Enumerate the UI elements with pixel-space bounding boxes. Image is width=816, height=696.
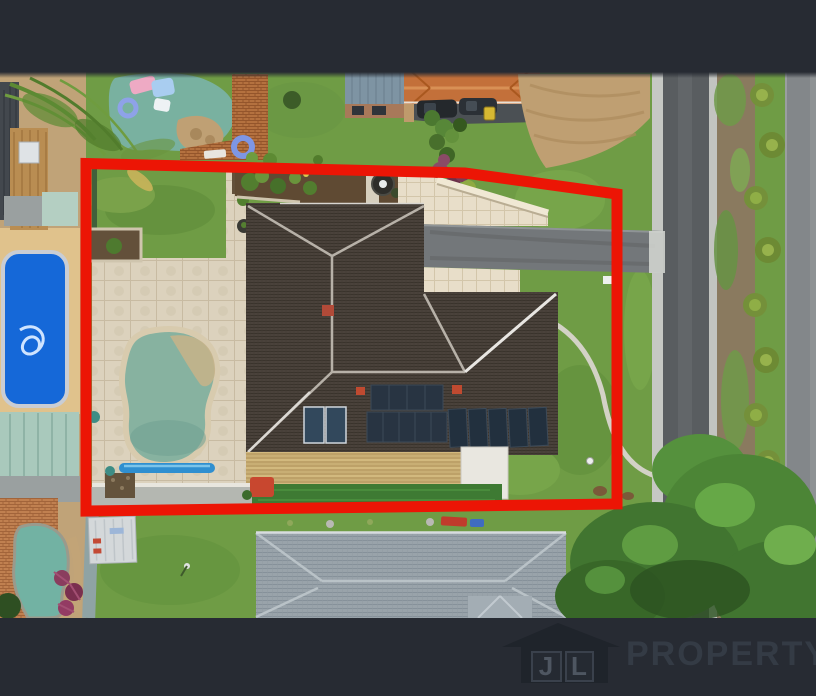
roof-vent — [452, 385, 462, 394]
ac-unit — [19, 142, 39, 163]
bare-patch — [593, 486, 607, 496]
solar-pv-row — [448, 404, 548, 450]
sprinkler-head — [587, 458, 594, 465]
aerial-photo-frame: J L PROPERTY — [0, 0, 816, 696]
garden-shed — [88, 516, 137, 564]
outdoor-furniture — [250, 477, 274, 497]
garden-shrub — [283, 91, 301, 109]
logo-initial-j: J — [539, 651, 553, 681]
mulch-patch — [105, 473, 135, 498]
bottom-letterbox-bar: J L PROPERTY — [0, 618, 816, 696]
photo-top-fade — [0, 72, 816, 78]
driveway-layback — [649, 231, 665, 273]
house-logo-icon: J L — [502, 623, 620, 685]
roof-gable — [468, 596, 532, 618]
roof-vent — [356, 387, 365, 395]
logo-initial-l: L — [571, 651, 587, 681]
agency-watermark: J L PROPERTY — [502, 623, 816, 685]
left-neighbour-veranda-roof — [0, 412, 79, 478]
bare-patch — [622, 492, 634, 500]
aerial-photo — [0, 72, 816, 618]
chimney — [322, 305, 334, 316]
logo-roof — [502, 623, 620, 647]
pool-cleaner — [105, 466, 115, 476]
pool-cover-roller — [119, 463, 215, 473]
left-neighbour-shed-roof — [42, 192, 78, 226]
solar-pv-array — [367, 385, 447, 442]
yellow-wheelie-bin — [484, 107, 495, 120]
brand-name: PROPERTY — [626, 623, 816, 685]
top-letterbox-bar — [0, 0, 816, 72]
